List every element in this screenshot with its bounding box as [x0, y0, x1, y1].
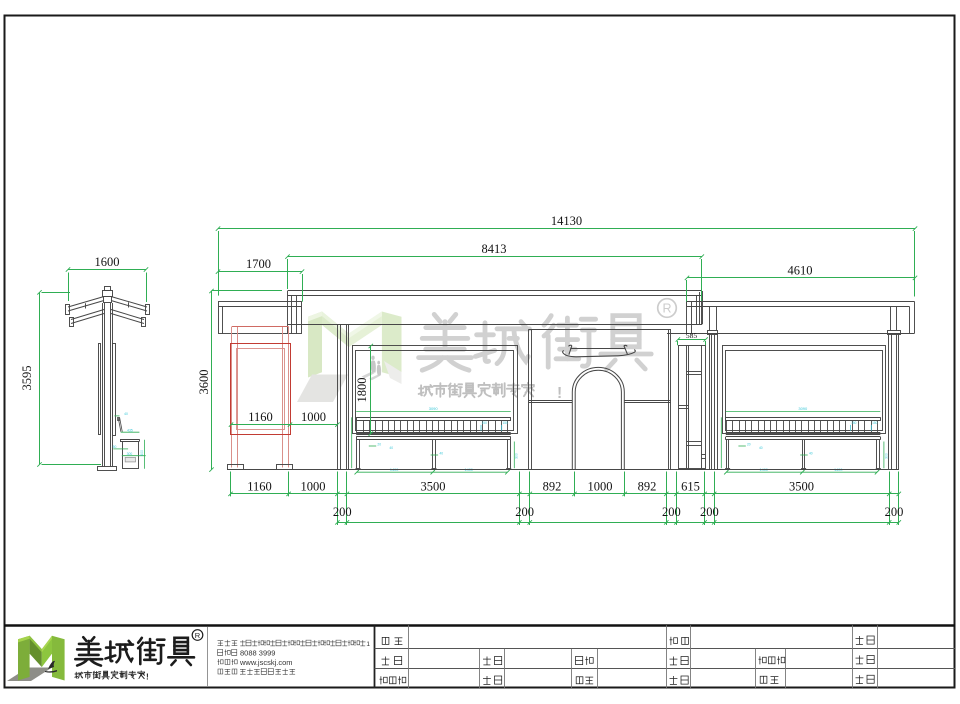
svg-text:40: 40 — [809, 452, 813, 456]
svg-text:892: 892 — [543, 479, 562, 493]
svg-text:3600: 3600 — [197, 370, 211, 395]
svg-text:300: 300 — [884, 453, 888, 459]
svg-text:200: 200 — [662, 505, 681, 519]
svg-text:R: R — [662, 302, 671, 316]
svg-text:1400: 1400 — [464, 468, 472, 472]
svg-text:200: 200 — [333, 505, 352, 519]
svg-text:150: 150 — [482, 421, 488, 425]
svg-text:!: ! — [146, 672, 149, 682]
svg-text:14130: 14130 — [551, 214, 582, 228]
svg-text:8413: 8413 — [482, 242, 507, 256]
svg-text:615: 615 — [681, 479, 700, 493]
svg-text:600: 600 — [140, 450, 144, 456]
svg-text:1400: 1400 — [834, 468, 842, 472]
svg-text:200: 200 — [515, 505, 534, 519]
svg-text:200: 200 — [700, 505, 719, 519]
svg-text:1000: 1000 — [588, 479, 613, 493]
svg-text:3090: 3090 — [429, 406, 439, 411]
svg-text:3595: 3595 — [20, 366, 34, 391]
svg-text:40: 40 — [759, 446, 763, 450]
svg-text:50: 50 — [113, 445, 117, 449]
svg-text:1: 1 — [366, 641, 370, 648]
svg-text:150: 150 — [851, 421, 857, 425]
svg-text:1600: 1600 — [95, 255, 120, 269]
svg-text:3500: 3500 — [789, 479, 814, 493]
svg-text:20: 20 — [377, 443, 381, 447]
svg-text:40: 40 — [389, 446, 393, 450]
svg-text:892: 892 — [638, 479, 657, 493]
svg-text:8088 3999: 8088 3999 — [240, 649, 275, 658]
svg-text:300: 300 — [127, 452, 133, 456]
svg-text:435: 435 — [127, 428, 133, 432]
svg-text:40: 40 — [124, 412, 128, 416]
svg-text:4610: 4610 — [788, 264, 813, 278]
svg-text:1400: 1400 — [390, 468, 398, 472]
svg-text:200: 200 — [885, 505, 904, 519]
svg-text:1400: 1400 — [759, 468, 767, 472]
svg-text:1700: 1700 — [246, 257, 271, 271]
svg-text:20: 20 — [747, 443, 751, 447]
svg-text:300: 300 — [515, 453, 519, 459]
svg-text:1000: 1000 — [301, 410, 326, 424]
svg-text:1800: 1800 — [355, 378, 369, 403]
svg-text:40: 40 — [439, 452, 443, 456]
svg-text:1000: 1000 — [301, 479, 326, 493]
svg-text:www.jscskj.com: www.jscskj.com — [239, 658, 293, 667]
svg-text:1160: 1160 — [248, 410, 273, 424]
svg-text:150: 150 — [872, 421, 878, 425]
svg-text:!: ! — [557, 385, 562, 402]
svg-text:150: 150 — [503, 421, 509, 425]
svg-text:3500: 3500 — [421, 479, 446, 493]
svg-text:1160: 1160 — [247, 479, 272, 493]
svg-text:585: 585 — [686, 331, 698, 340]
svg-text:3090: 3090 — [798, 406, 808, 411]
svg-text:R: R — [195, 631, 201, 640]
